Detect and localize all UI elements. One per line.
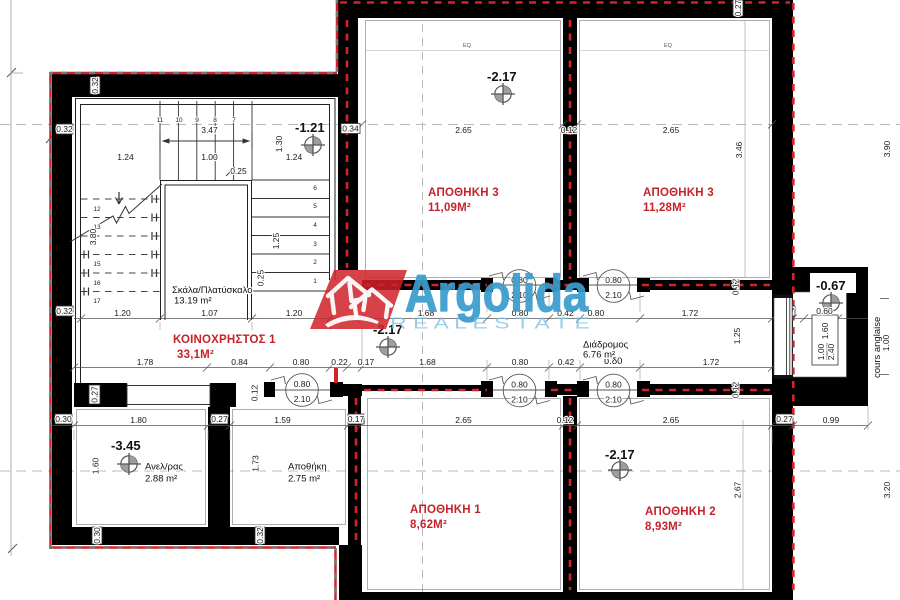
svg-text:1.72: 1.72 xyxy=(682,308,699,318)
svg-text:0.30: 0.30 xyxy=(55,414,72,424)
svg-text:0.80: 0.80 xyxy=(294,379,311,389)
svg-text:0.32: 0.32 xyxy=(56,306,73,316)
svg-text:0.84: 0.84 xyxy=(231,357,248,367)
svg-text:0.27: 0.27 xyxy=(776,414,793,424)
svg-text:2.10: 2.10 xyxy=(605,395,622,405)
svg-text:1.00: 1.00 xyxy=(816,343,826,360)
svg-text:3.46: 3.46 xyxy=(734,141,744,158)
svg-text:8,93Μ²: 8,93Μ² xyxy=(645,521,682,533)
svg-text:υ.δ0: υ.δ0 xyxy=(604,356,622,367)
svg-text:0.80: 0.80 xyxy=(512,357,529,367)
svg-text:1.73: 1.73 xyxy=(251,455,261,472)
svg-text:EQ: EQ xyxy=(463,43,472,49)
svg-text:ΑΠΟΘΗΚΗ 3: ΑΠΟΘΗΚΗ 3 xyxy=(428,187,499,199)
svg-text:15: 15 xyxy=(93,261,101,268)
svg-text:1.00: 1.00 xyxy=(881,334,891,351)
svg-text:0.25: 0.25 xyxy=(256,269,266,286)
svg-text:4: 4 xyxy=(313,222,317,229)
svg-text:0.12: 0.12 xyxy=(561,125,578,135)
svg-text:0.17: 0.17 xyxy=(348,414,365,424)
svg-text:0.80: 0.80 xyxy=(293,357,310,367)
svg-text:0.80: 0.80 xyxy=(605,380,622,390)
svg-text:1.00: 1.00 xyxy=(201,152,218,162)
svg-text:-2.17: -2.17 xyxy=(487,69,517,84)
svg-text:0.27: 0.27 xyxy=(90,386,100,403)
svg-text:0.80: 0.80 xyxy=(511,380,528,390)
svg-text:0.60: 0.60 xyxy=(816,306,833,316)
svg-text:ΑΠΟΘΗΚΗ 2: ΑΠΟΘΗΚΗ 2 xyxy=(645,506,716,518)
svg-text:8: 8 xyxy=(213,117,217,124)
svg-text:0.12: 0.12 xyxy=(731,381,741,398)
svg-text:ΑΠΟΘΗΚΗ 3: ΑΠΟΘΗΚΗ 3 xyxy=(643,187,714,199)
svg-text:3.20: 3.20 xyxy=(882,481,892,498)
svg-text:Argolida: Argolida xyxy=(405,265,589,323)
svg-text:2.65: 2.65 xyxy=(663,415,680,425)
svg-text:11,09Μ²: 11,09Μ² xyxy=(428,202,471,214)
svg-text:2.65: 2.65 xyxy=(455,125,472,135)
svg-text:0.12: 0.12 xyxy=(557,415,574,425)
svg-text:1: 1 xyxy=(313,278,317,285)
svg-text:0.12: 0.12 xyxy=(250,384,260,401)
svg-text:0.32: 0.32 xyxy=(56,124,73,134)
svg-text:1.72: 1.72 xyxy=(703,357,720,367)
svg-text:R E A L E S T A T E: R E A L E S T A T E xyxy=(390,316,590,333)
svg-text:1.80: 1.80 xyxy=(130,415,147,425)
svg-text:16: 16 xyxy=(93,280,101,287)
svg-text:2.67: 2.67 xyxy=(733,481,743,498)
svg-text:EQ: EQ xyxy=(664,43,673,49)
svg-text:1.78: 1.78 xyxy=(137,357,154,367)
svg-text:2.65: 2.65 xyxy=(455,415,472,425)
svg-text:10: 10 xyxy=(175,117,183,124)
svg-text:2.75 m²: 2.75 m² xyxy=(288,474,320,485)
svg-text:9: 9 xyxy=(195,117,199,124)
svg-text:0.12: 0.12 xyxy=(731,278,741,295)
svg-text:8,62Μ²: 8,62Μ² xyxy=(410,519,447,531)
svg-text:0.34: 0.34 xyxy=(342,124,359,134)
svg-text:1.20: 1.20 xyxy=(114,308,131,318)
svg-text:1.68: 1.68 xyxy=(419,357,436,367)
svg-text:1.30: 1.30 xyxy=(274,135,284,152)
svg-text:Ανελ/ρας: Ανελ/ρας xyxy=(145,462,183,473)
svg-text:1.60: 1.60 xyxy=(91,457,101,474)
svg-text:11,28Μ²: 11,28Μ² xyxy=(643,202,686,214)
svg-text:0.99: 0.99 xyxy=(823,415,840,425)
svg-text:11: 11 xyxy=(157,117,164,124)
svg-text:3: 3 xyxy=(313,241,317,248)
svg-text:ΚΟΙΝΟΧΡΗΣΤΟΣ 1: ΚΟΙΝΟΧΡΗΣΤΟΣ 1 xyxy=(173,334,276,346)
svg-text:0.27: 0.27 xyxy=(211,414,228,424)
svg-text:6: 6 xyxy=(313,185,317,192)
svg-text:17: 17 xyxy=(93,298,101,305)
svg-text:Σκάλα/Πλατύσκαλο: Σκάλα/Πλατύσκαλο xyxy=(172,285,253,296)
svg-text:-0.67: -0.67 xyxy=(816,278,846,293)
svg-text:12: 12 xyxy=(93,206,101,213)
svg-text:7: 7 xyxy=(232,117,236,124)
svg-text:3.47: 3.47 xyxy=(201,125,218,135)
svg-text:0.32: 0.32 xyxy=(90,77,100,94)
svg-text:2.10: 2.10 xyxy=(511,395,528,405)
svg-text:0.30: 0.30 xyxy=(92,527,102,544)
svg-text:33,1Μ²: 33,1Μ² xyxy=(177,349,214,361)
svg-text:2.65: 2.65 xyxy=(663,125,680,135)
svg-text:2.88 m²: 2.88 m² xyxy=(145,474,177,485)
svg-text:2.10: 2.10 xyxy=(605,290,622,300)
svg-text:0.22: 0.22 xyxy=(331,357,348,367)
svg-text:2.10: 2.10 xyxy=(294,394,311,404)
svg-text:1.24: 1.24 xyxy=(286,152,303,162)
svg-text:1.24: 1.24 xyxy=(117,152,134,162)
svg-text:2.40: 2.40 xyxy=(826,343,836,360)
svg-text:1.07: 1.07 xyxy=(201,308,218,318)
svg-text:1.25: 1.25 xyxy=(732,327,742,344)
svg-text:3.90: 3.90 xyxy=(882,140,892,157)
svg-text:-3.45: -3.45 xyxy=(111,438,141,453)
svg-text:0.25: 0.25 xyxy=(230,166,247,176)
svg-text:13.19 m²: 13.19 m² xyxy=(174,296,212,307)
svg-text:Αποθήκη: Αποθήκη xyxy=(288,462,327,473)
svg-text:ΑΠΟΘΗΚΗ 1: ΑΠΟΘΗΚΗ 1 xyxy=(410,504,481,516)
svg-text:0.32: 0.32 xyxy=(255,527,265,544)
svg-text:0.17: 0.17 xyxy=(358,357,375,367)
svg-text:0.80: 0.80 xyxy=(588,308,605,318)
svg-text:0.27: 0.27 xyxy=(733,0,743,16)
svg-text:1.60: 1.60 xyxy=(820,322,830,339)
svg-text:-1.21: -1.21 xyxy=(295,120,325,135)
svg-text:1.25: 1.25 xyxy=(271,232,281,249)
svg-text:0.42: 0.42 xyxy=(558,357,575,367)
svg-text:1.20: 1.20 xyxy=(286,308,303,318)
svg-text:3.80: 3.80 xyxy=(88,228,98,245)
svg-text:2: 2 xyxy=(313,259,317,266)
svg-text:5: 5 xyxy=(313,203,317,210)
svg-text:1.59: 1.59 xyxy=(274,415,291,425)
svg-text:0.80: 0.80 xyxy=(605,275,622,285)
